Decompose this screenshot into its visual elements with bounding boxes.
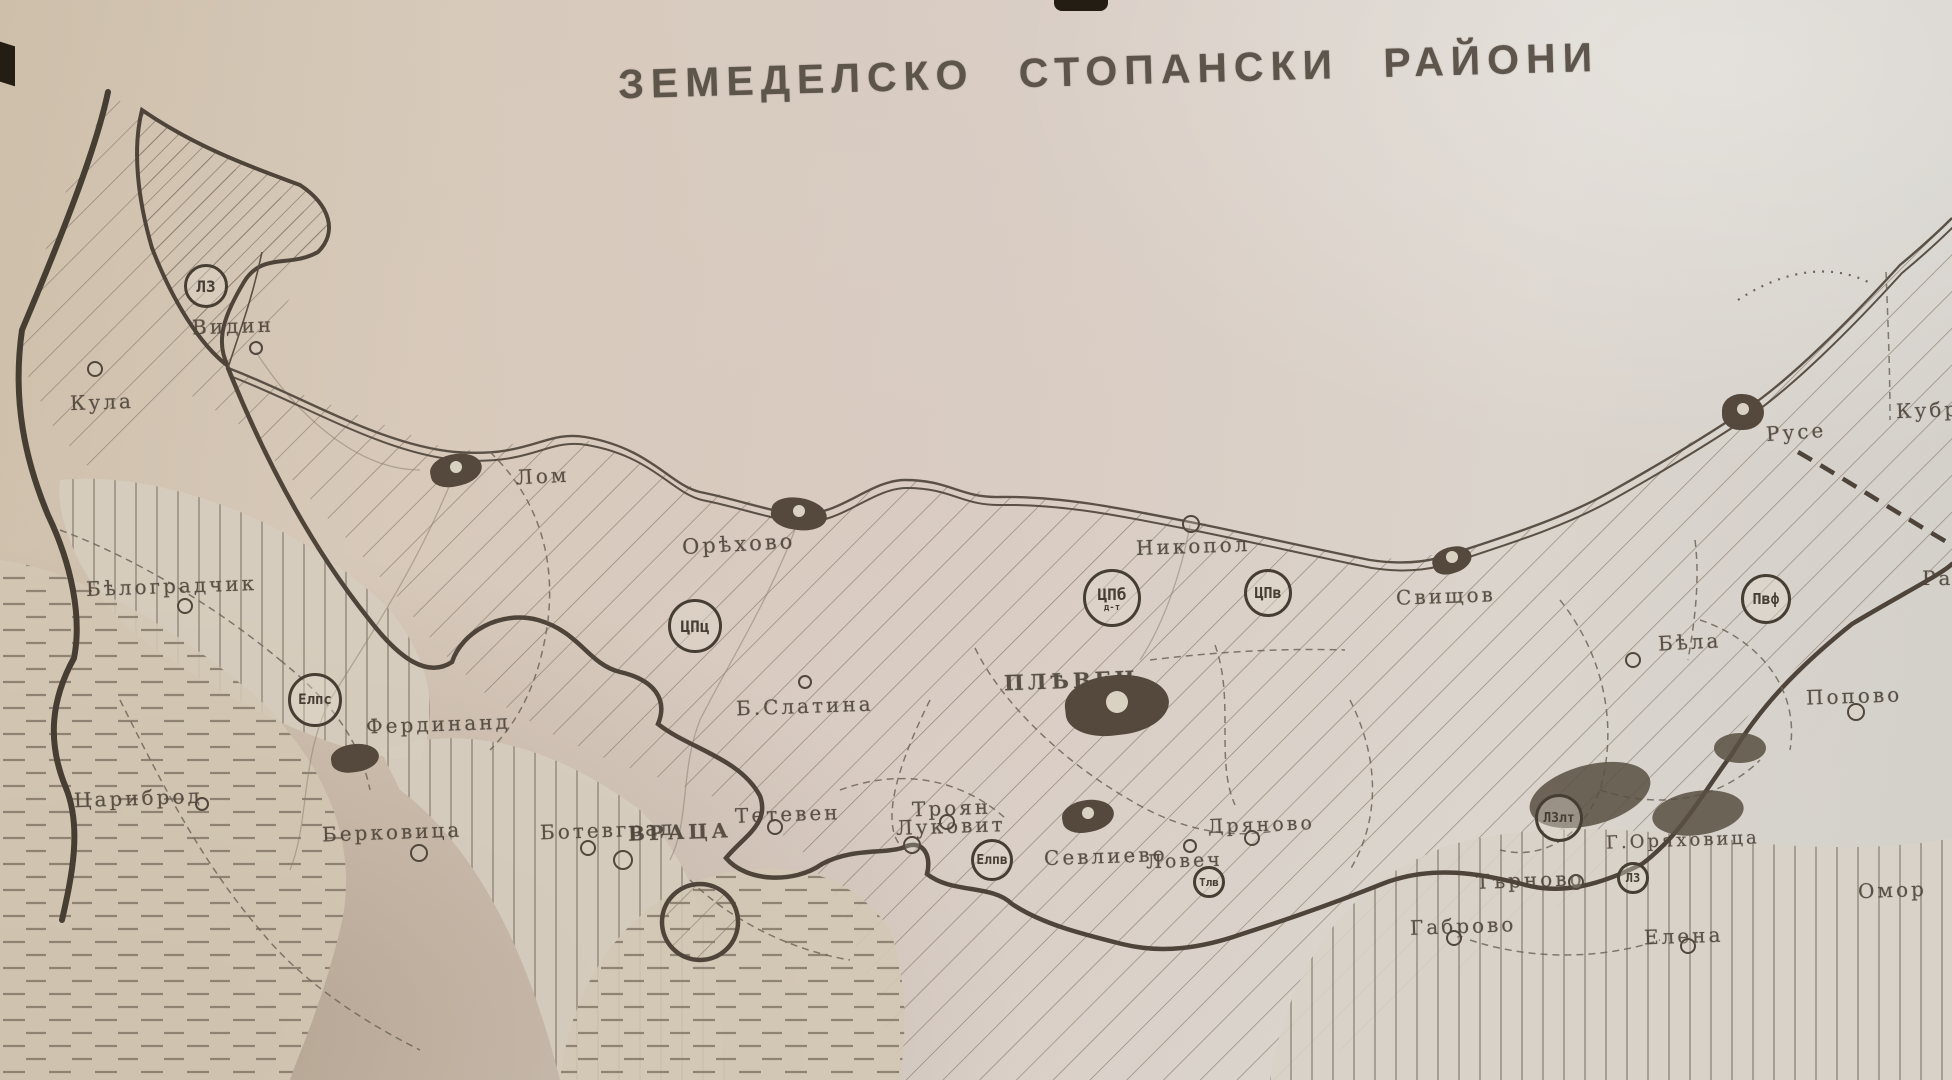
town-label: Лом bbox=[515, 463, 569, 490]
town-label: Ботевград bbox=[540, 816, 676, 845]
town-label: Цариброд bbox=[74, 784, 203, 812]
town-circle-marker bbox=[580, 840, 596, 856]
district-code-marker: ЦПбд-т bbox=[1083, 569, 1141, 627]
town-label: Б.Слатина bbox=[736, 692, 874, 721]
town-circle-marker bbox=[410, 844, 428, 862]
district-code-marker: Пвф bbox=[1741, 574, 1791, 624]
town-label: Никопол bbox=[1136, 532, 1251, 560]
town-label: Бѣла bbox=[1657, 628, 1722, 655]
district-code-sub: д-т bbox=[1104, 604, 1120, 612]
district-code-marker: ЦПц bbox=[668, 599, 722, 653]
district-code-marker: Елпв bbox=[971, 839, 1013, 881]
town-blob-hole bbox=[1737, 403, 1749, 415]
town-circle-marker bbox=[767, 819, 783, 835]
town-blob-hole bbox=[450, 461, 462, 473]
town-label: Омор bbox=[1858, 877, 1928, 903]
town-label: Кула bbox=[70, 389, 135, 415]
district-code: Тлв bbox=[1199, 876, 1219, 889]
town-circle-marker bbox=[903, 836, 921, 854]
town-label: Русе bbox=[1765, 418, 1827, 446]
district-code: Пвф bbox=[1752, 590, 1779, 608]
town-circle-marker bbox=[195, 797, 209, 811]
town-circle-marker bbox=[1183, 839, 1197, 853]
town-label: Свищов bbox=[1396, 582, 1497, 609]
town-label: Севлиево bbox=[1044, 842, 1168, 870]
district-code: ЛЗ bbox=[1626, 871, 1640, 885]
town-circle-marker bbox=[87, 361, 103, 377]
district-code: ЦПб bbox=[1098, 585, 1127, 604]
town-blob-hole bbox=[1106, 691, 1128, 713]
town-label: Фердинанд bbox=[366, 709, 512, 738]
district-code-marker: Елпс bbox=[288, 673, 342, 727]
town-blob-hole bbox=[1082, 807, 1094, 819]
town-circle-marker bbox=[177, 598, 193, 614]
town-circle-marker bbox=[1625, 652, 1641, 668]
district-code: ЛЗ bbox=[196, 277, 215, 296]
town-blob-hole bbox=[793, 505, 805, 517]
map-artwork bbox=[0, 0, 1952, 1080]
town-label: Габрово bbox=[1410, 912, 1517, 940]
town-label: Берковица bbox=[322, 818, 463, 847]
town-blob-hole bbox=[1446, 551, 1458, 563]
district-code-marker: ЛЗлт bbox=[1535, 794, 1583, 842]
map-photo: ЗЕМЕДЕЛСКО СТОПАНСКИ РАЙОНИ ВидинКулаЛом… bbox=[0, 0, 1952, 1080]
town-label: Ра bbox=[1922, 566, 1952, 590]
town-circle-marker bbox=[939, 814, 955, 830]
district-code-marker: Тлв bbox=[1193, 866, 1225, 898]
district-code: Елпс bbox=[298, 692, 332, 708]
town-label: Дряново bbox=[1208, 812, 1316, 838]
town-circle-marker bbox=[1847, 703, 1865, 721]
town-label: Кубр bbox=[1896, 397, 1952, 423]
district-code-marker: ЦПв bbox=[1244, 569, 1292, 617]
district-code: ЦПц bbox=[681, 617, 710, 636]
town-circle-marker bbox=[798, 675, 812, 689]
town-label: Тетевен bbox=[735, 800, 841, 828]
district-code: Елпв bbox=[976, 853, 1007, 868]
district-code: ЛЗлт bbox=[1543, 811, 1574, 826]
town-circle-marker bbox=[1244, 830, 1260, 846]
town-label: Видин bbox=[192, 313, 275, 340]
town-circle-marker bbox=[1446, 930, 1462, 946]
town-circle-marker bbox=[1568, 874, 1584, 890]
town-circle-marker bbox=[249, 341, 263, 355]
town-circle-marker bbox=[1182, 515, 1200, 533]
district-code: ЦПв bbox=[1254, 584, 1281, 602]
town-circle-marker bbox=[1680, 938, 1696, 954]
town-circle-marker bbox=[613, 850, 633, 870]
vratsa-district-blob bbox=[662, 884, 738, 960]
district-dotted-arc bbox=[1738, 272, 1868, 300]
district-code-marker: ЛЗ bbox=[1617, 862, 1649, 894]
district-code-marker: ЛЗ bbox=[184, 264, 228, 308]
